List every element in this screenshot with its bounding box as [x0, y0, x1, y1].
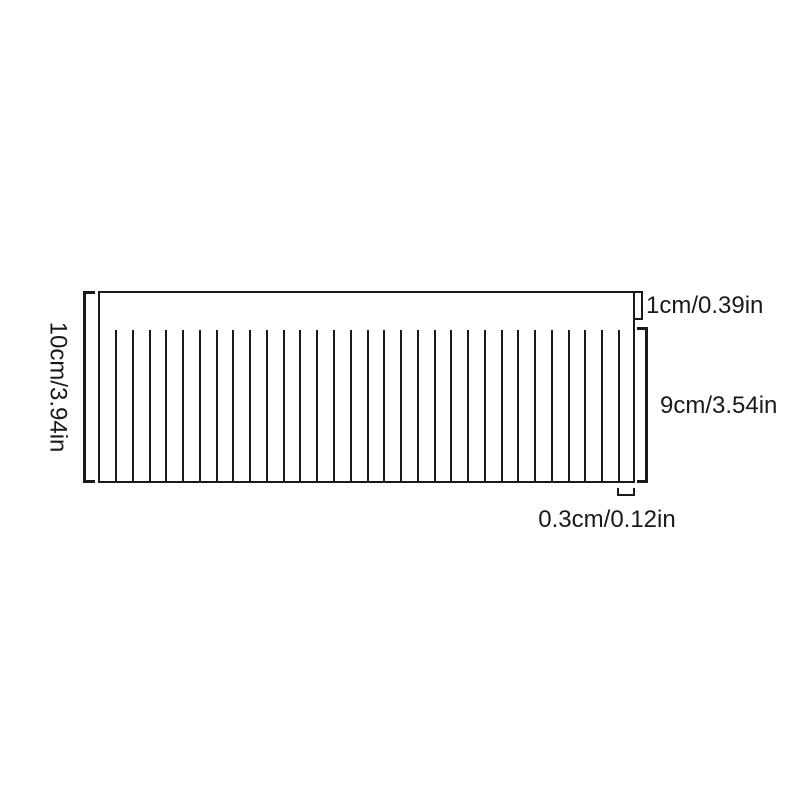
fringe-line [584, 330, 586, 481]
fringe-line [417, 330, 419, 481]
fringe-line [434, 330, 436, 481]
total-height-bracket [83, 291, 95, 483]
fringe-line [467, 330, 469, 481]
fringe-line [551, 330, 553, 481]
fringe-line [149, 330, 151, 481]
fringe-line [383, 330, 385, 481]
fringe-line [216, 330, 218, 481]
fringe-line [266, 330, 268, 481]
fringe-line [182, 330, 184, 481]
fringe-line [484, 330, 486, 481]
fringe-line [517, 330, 519, 481]
fringe-height-label: 9cm/3.54in [660, 392, 777, 419]
fringe-line [165, 330, 167, 481]
fringe-line [400, 330, 402, 481]
fringe-line [299, 330, 301, 481]
product-outline [98, 291, 635, 483]
total-height-label: 10cm/3.94in [45, 322, 72, 453]
strip-width-bracket [617, 488, 635, 496]
top-band-label: 1cm/0.39in [646, 292, 763, 319]
fringe-line [249, 330, 251, 481]
fringe-line [501, 330, 503, 481]
fringe-height-bracket [637, 327, 648, 483]
fringe-line [450, 330, 452, 481]
fringe-line [316, 330, 318, 481]
fringe-line [601, 330, 603, 481]
fringe-line [333, 330, 335, 481]
top-band-bracket [634, 291, 643, 320]
fringe-line [232, 330, 234, 481]
fringe-line [568, 330, 570, 481]
fringe-line [367, 330, 369, 481]
fringe-line [115, 330, 117, 481]
fringe-line [534, 330, 536, 481]
fringe-line [350, 330, 352, 481]
fringe-lines [100, 293, 633, 481]
dimension-diagram: 10cm/3.94in 1cm/0.39in 9cm/3.54in 0.3cm/… [0, 0, 800, 800]
fringe-line [199, 330, 201, 481]
fringe-line [132, 330, 134, 481]
fringe-line [618, 330, 620, 481]
strip-width-label: 0.3cm/0.12in [538, 506, 675, 533]
fringe-line [283, 330, 285, 481]
